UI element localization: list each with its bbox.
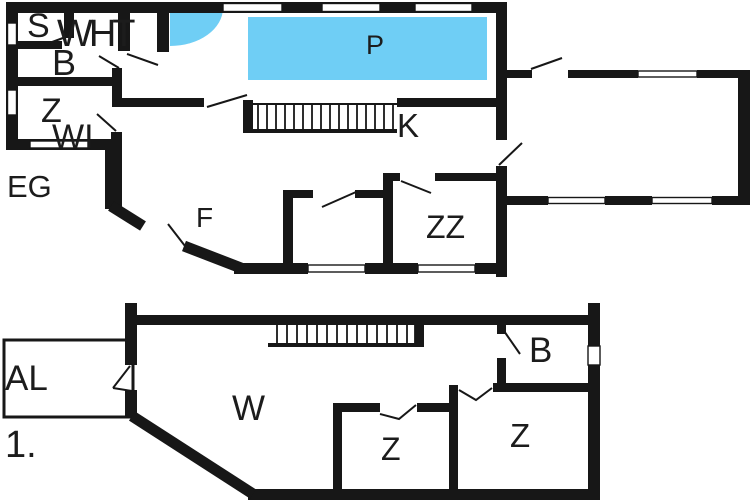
diagonal-wall (111, 206, 143, 226)
floor-first: AL 1. W Z Z B (4, 303, 600, 500)
room-label-pool: P (366, 30, 384, 60)
floor-label-eg: EG (7, 169, 52, 204)
window (308, 265, 365, 272)
window (418, 265, 475, 272)
wall-segment (496, 2, 507, 140)
window (223, 4, 282, 12)
wall-segment (283, 190, 313, 198)
wall-segment (605, 196, 652, 205)
room-label-s: S (27, 7, 50, 45)
window (415, 4, 472, 12)
room-label-b: B (52, 42, 76, 83)
room-label-z-right: Z (510, 417, 530, 454)
wall-segment (248, 489, 600, 500)
wall-segment (435, 173, 496, 181)
wall-segment (355, 190, 383, 198)
door-swing-z-mid (380, 405, 416, 419)
wall-segment (125, 303, 137, 365)
stair-treads (258, 104, 393, 131)
wall-segment (697, 70, 742, 78)
wall-segment (157, 2, 169, 52)
floor-plan-drawing: S WHT B Z WI EG P K F ZZ (0, 0, 750, 500)
staircase-ground (243, 104, 397, 131)
wall-segment (137, 315, 588, 325)
wall-segment (333, 403, 342, 490)
wall-segment (738, 70, 750, 205)
wall-segment (588, 303, 600, 500)
window (8, 23, 17, 45)
window (588, 346, 600, 365)
room-label-k: K (397, 107, 419, 144)
wall-segment (449, 385, 458, 490)
room-label-z-mid: Z (381, 431, 401, 467)
stair-treads (277, 325, 415, 343)
door-swing-wi-room (97, 114, 116, 131)
door-swing-z-right (459, 388, 492, 400)
room-label-b-first: B (529, 331, 552, 370)
wall-segment (105, 139, 117, 209)
door-swing-b-room (99, 56, 119, 68)
wall-segment (283, 190, 293, 270)
floor-ground: S WHT B Z WI EG P K F ZZ (6, 2, 750, 277)
entrance-door-arc (170, 8, 223, 46)
wall-segment (507, 70, 532, 78)
staircase-first (268, 325, 424, 345)
window (8, 90, 17, 115)
floor-label-1: 1. (5, 424, 37, 466)
room-label-f: F (196, 202, 213, 233)
room-label-wi: WI (52, 118, 94, 156)
wall-segment (397, 98, 497, 107)
wall-segment (475, 263, 507, 274)
door-swing-zz-room (401, 181, 431, 193)
wall-segment (493, 383, 590, 392)
wall-segment (234, 263, 308, 274)
wall-segment (383, 173, 400, 181)
wall-segment (383, 173, 393, 270)
diagonal-wall (184, 246, 241, 268)
wall-segment (116, 98, 204, 107)
window (322, 4, 380, 12)
door-swing-wing-side (499, 143, 522, 165)
door-swing-k-hall (207, 95, 247, 107)
door-swing-small-room (322, 192, 356, 207)
wall-segment (333, 403, 380, 412)
wall-segment (496, 166, 507, 277)
window (548, 198, 605, 204)
window (638, 71, 697, 77)
room-label-zz: ZZ (426, 209, 465, 245)
door-swing-f-room (168, 224, 185, 246)
wall-segment (497, 358, 506, 383)
floor-plan-page: S WHT B Z WI EG P K F ZZ (0, 0, 750, 500)
room-label-w: W (232, 389, 265, 428)
room-label-al: AL (5, 359, 48, 398)
wall-segment (568, 70, 638, 78)
door-swing-wing-top (531, 58, 562, 69)
door-swing-t-room (127, 54, 158, 65)
door-swing-b-room (504, 331, 520, 354)
wall-segment (507, 196, 548, 205)
wall-segment (417, 403, 449, 412)
wall-segment (712, 196, 750, 205)
window (652, 198, 712, 204)
